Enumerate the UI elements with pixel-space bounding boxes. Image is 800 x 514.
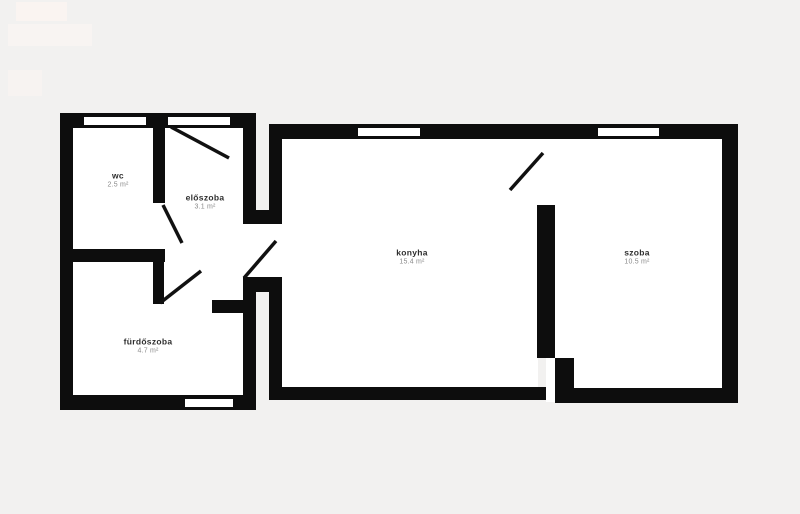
wall-main-top (269, 124, 738, 139)
wall-szoba-bottom-stub (555, 358, 574, 391)
room-name-eloszoba: előszoba (186, 192, 225, 203)
wall-wc-furdoszoba (60, 249, 165, 262)
room-area-wc: 2.5 m² (107, 181, 128, 190)
wall-eloszoba-bottom-stub (212, 300, 246, 313)
watermark-block-1 (16, 2, 67, 21)
watermark-block-2 (8, 24, 92, 46)
room-name-wc: wc (107, 170, 128, 181)
room-label-eloszoba: előszoba3.1 m² (186, 192, 225, 211)
floor-passage (243, 220, 282, 280)
room-name-szoba: szoba (624, 247, 650, 258)
window-szoba-top (598, 128, 659, 136)
watermark-block-3 (8, 70, 42, 96)
room-area-szoba: 10.5 m² (624, 258, 650, 267)
room-name-furdoszoba: fürdőszoba (124, 336, 173, 347)
wall-furdoszoba-eloszoba-vertical (153, 249, 164, 304)
room-label-furdoszoba: fürdőszoba4.7 m² (124, 336, 173, 355)
wall-konyha-left-lower (269, 292, 282, 400)
window-wc-top (84, 117, 146, 125)
floor-divider-gap (537, 138, 555, 208)
room-label-konyha: konyha15.4 m² (396, 247, 428, 266)
wall-konyha-bottom (269, 387, 546, 400)
wall-wc-eloszoba-divider (153, 126, 165, 203)
opening-entrance-top (168, 117, 230, 125)
wall-neck-lower-connector (243, 277, 282, 292)
room-label-wc: wc2.5 m² (107, 170, 128, 189)
wall-left-section-right-upper (243, 113, 256, 224)
room-area-eloszoba: 3.1 m² (186, 203, 225, 212)
room-area-furdoszoba: 4.7 m² (124, 347, 173, 356)
floorplan-canvas: wc2.5 m²előszoba3.1 m²konyha15.4 m²szoba… (0, 0, 800, 514)
wall-konyha-szoba-divider (537, 205, 555, 358)
wall-szoba-right (722, 124, 738, 403)
window-furdoszoba-bottom (185, 399, 233, 407)
room-name-konyha: konyha (396, 247, 428, 258)
wall-szoba-bottom (555, 388, 738, 403)
room-area-konyha: 15.4 m² (396, 258, 428, 267)
wall-konyha-left-upper (269, 124, 282, 222)
wall-left-section-right-lower (243, 277, 256, 410)
window-konyha-top (358, 128, 420, 136)
room-label-szoba: szoba10.5 m² (624, 247, 650, 266)
